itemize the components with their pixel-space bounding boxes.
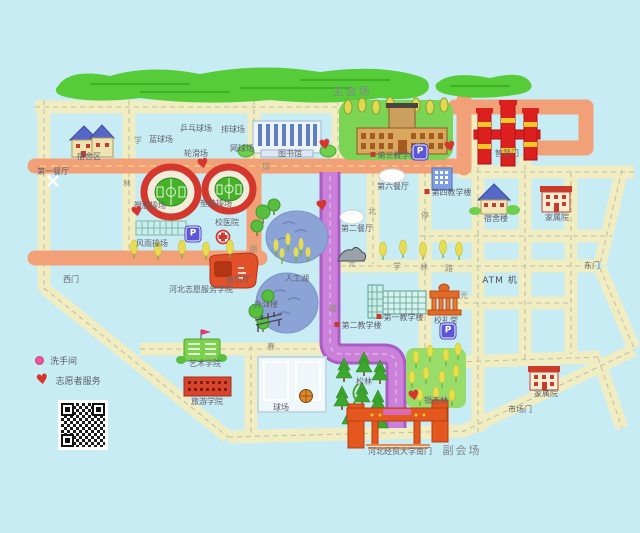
legend: 洗手间 ♥ 志愿者服务 [36, 350, 108, 450]
legend-volunteer-label: 志愿者服务 [56, 374, 101, 387]
school-auditorium [428, 284, 461, 315]
restroom-dot-icon [36, 357, 43, 364]
campus-hand-drawn-map: 主会场副会场宿舍区第一餐厅乒乓球场排球场蓝球场轮滑场网球场图书馆第三教学楼智慧门… [0, 0, 640, 533]
legend-restroom-label: 洗手间 [50, 354, 77, 367]
teaching-building-3 [339, 97, 453, 160]
artificial-lake [256, 211, 328, 333]
stadium-right [205, 167, 253, 211]
family-compound-bottom [528, 366, 560, 390]
wisdom-gate [474, 100, 540, 166]
volunteer-heart-icon: ♥ [35, 371, 50, 389]
art-college [176, 329, 227, 364]
rock [338, 247, 366, 261]
teaching-building-1 [368, 285, 426, 318]
ball-court [258, 357, 326, 412]
stadium-left [144, 167, 198, 217]
music-hall [210, 253, 258, 288]
qr-code [58, 400, 108, 450]
library-building [238, 121, 336, 157]
dining-hall-6-cloud [379, 169, 405, 183]
tourism-college [184, 377, 231, 396]
legend-volunteer-row: ♥ 志愿者服务 [36, 370, 108, 390]
covered-playground [136, 221, 186, 235]
map-artwork [0, 0, 640, 533]
legend-restroom-row: 洗手间 [36, 350, 108, 370]
dormitory-area-houses [70, 125, 114, 157]
ginkgo-forest [406, 343, 466, 408]
dining-hall-2-cloud [340, 210, 364, 224]
family-compound-top [540, 186, 572, 212]
teaching-building-4 [432, 168, 452, 190]
